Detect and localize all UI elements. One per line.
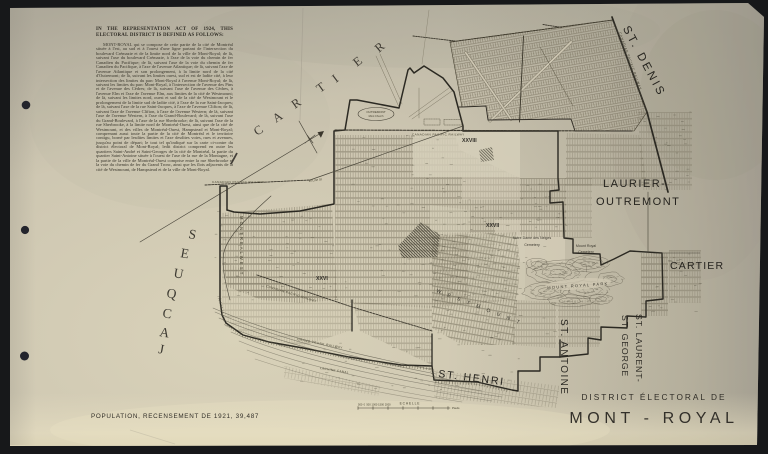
svg-text:CARTIER: CARTIER [670, 260, 724, 272]
svg-text:ST. LAURENT-: ST. LAURENT- [634, 314, 644, 383]
svg-text:ST. ANTOINE: ST. ANTOINE [558, 319, 569, 395]
svg-text:POPULATION, RECENSEMENT DE 192: POPULATION, RECENSEMENT DE 1921, 39,487 [91, 413, 259, 420]
svg-text:XXVII: XXVII [486, 223, 500, 229]
svg-text:CANADIAN PACIFIC RAILWAY: CANADIAN PACIFIC RAILWAY [212, 180, 265, 184]
svg-text:DISTRICT ÉLECTORAL DE: DISTRICT ÉLECTORAL DE [581, 392, 726, 402]
svg-text:Cemetery: Cemetery [578, 250, 594, 254]
svg-text:Notre Dame des Neiges: Notre Dame des Neiges [513, 236, 552, 240]
svg-text:ST. GEORGE: ST. GEORGE [620, 315, 630, 377]
svg-text:LAURIER-: LAURIER- [603, 178, 666, 190]
svg-text:MONT - ROYAL: MONT - ROYAL [569, 410, 738, 427]
svg-text:500 0 500 1000 1500 200: 500 0 500 1000 1500 2000 [358, 403, 391, 407]
svg-text:Mount Royal: Mount Royal [576, 244, 596, 248]
svg-text:OUTREMONT: OUTREMONT [596, 196, 680, 208]
svg-text:Cemetery: Cemetery [524, 243, 540, 247]
svg-text:CANADIAN PACIFIC RAILWAY: CANADIAN PACIFIC RAILWAY [412, 133, 465, 137]
svg-text:XXVI: XXVI [316, 276, 328, 282]
svg-text:XXVIII: XXVIII [462, 138, 477, 144]
svg-text:OUTREMONT: OUTREMONT [366, 110, 385, 114]
svg-text:Mont Church: Mont Church [369, 114, 384, 118]
svg-text:M O N T R E A L W E S T: M O N T R E A L W E S T [239, 216, 244, 275]
svg-text:Pieds: Pieds [452, 406, 460, 410]
svg-text:ECHELLE: ECHELLE [400, 402, 421, 406]
